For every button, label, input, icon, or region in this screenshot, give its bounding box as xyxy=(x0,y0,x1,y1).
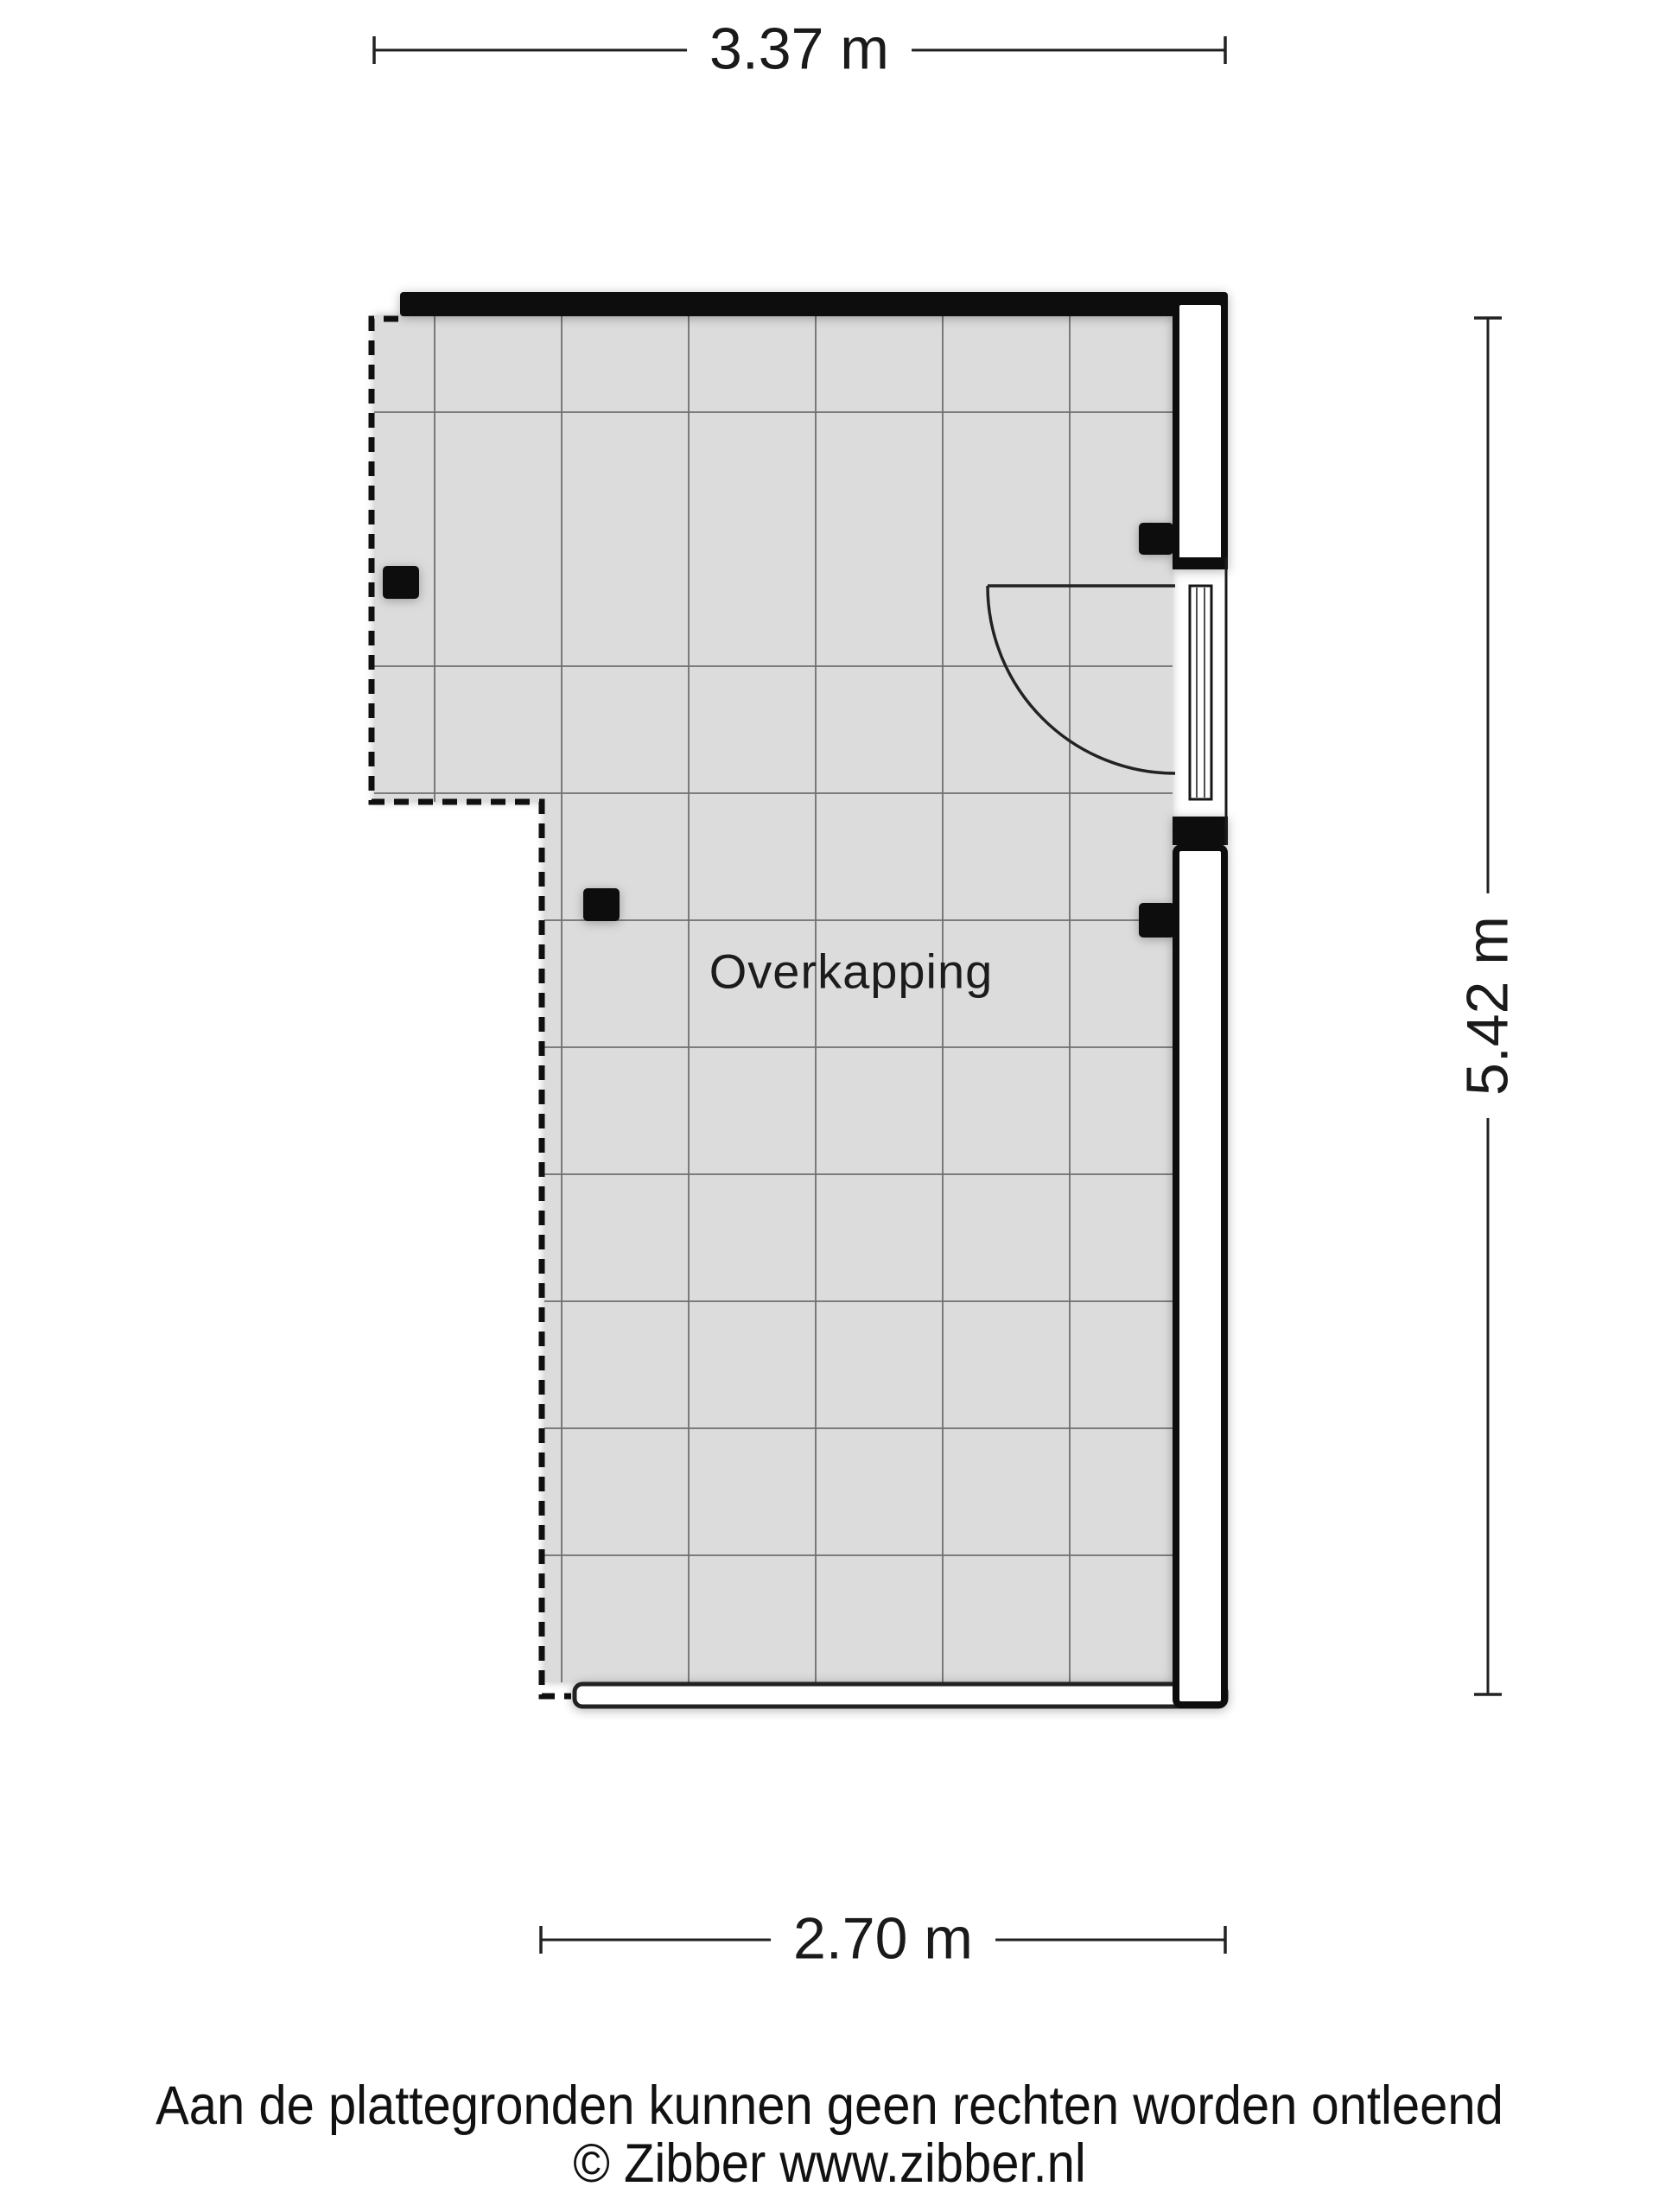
room-label: Overkapping xyxy=(709,944,994,1000)
dimension-label-bottom: 2.70 m xyxy=(771,1907,995,1972)
dimension-label-right: 5.42 m xyxy=(1456,893,1521,1118)
right-wall-lower xyxy=(1176,848,1224,1705)
door-panel xyxy=(1190,586,1211,799)
floorplan-drawing xyxy=(0,0,1659,2212)
bottom-wall xyxy=(575,1684,1226,1707)
window-sill-bottom xyxy=(1173,817,1228,845)
post-right-lower xyxy=(1139,903,1175,938)
post-top-left xyxy=(383,566,419,599)
post-middle-left xyxy=(583,888,620,921)
dimension-label-top: 3.37 m xyxy=(687,17,912,82)
right-wall-upper xyxy=(1176,302,1224,563)
window-sill-top xyxy=(1173,557,1228,569)
floorplan-page: 3.37 m 5.42 m 2.70 m Overkapping Aan de … xyxy=(0,0,1659,2212)
footer-copyright: © Zibber www.zibber.nl xyxy=(573,2133,1086,2195)
footer-disclaimer: Aan de plattegronden kunnen geen rechten… xyxy=(156,2075,1503,2137)
top-wall xyxy=(400,292,1228,316)
post-right-upper xyxy=(1139,523,1173,555)
